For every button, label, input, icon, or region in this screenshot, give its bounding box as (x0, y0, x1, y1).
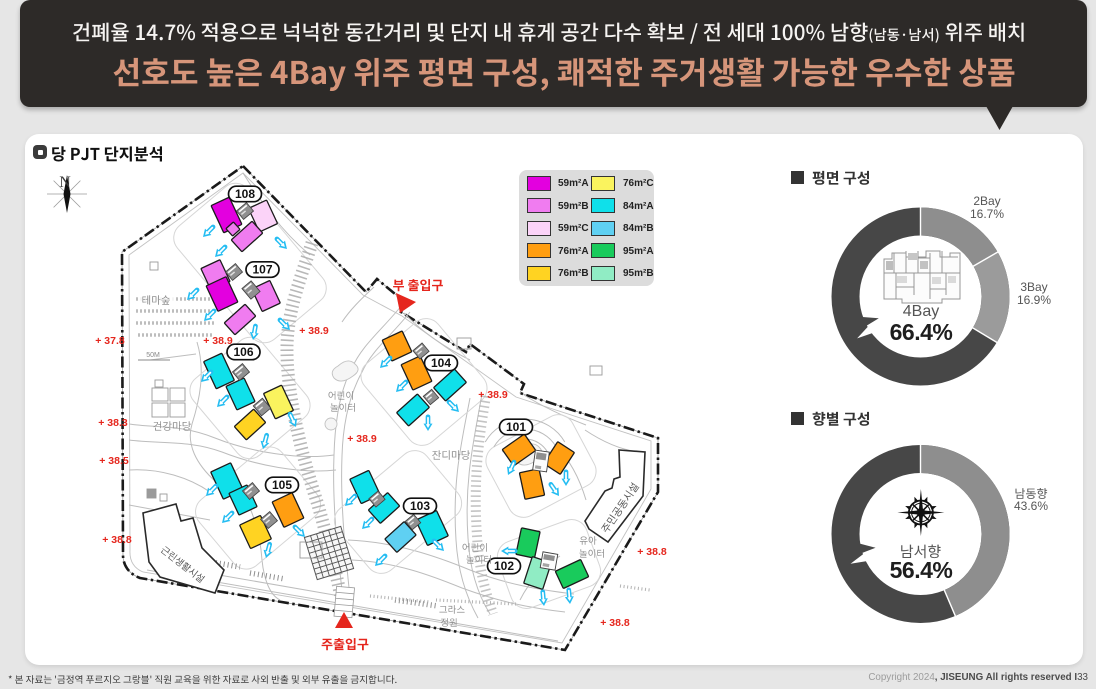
svg-text:+ 38.9: + 38.9 (347, 433, 377, 445)
svg-text:+ 38.9: + 38.9 (299, 325, 329, 337)
svg-text:102: 102 (494, 559, 514, 573)
svg-text:+ 38.8: + 38.8 (102, 534, 132, 546)
svg-text:103: 103 (410, 499, 430, 513)
svg-text:66.4%: 66.4% (890, 319, 953, 345)
svg-text:101: 101 (506, 420, 526, 434)
svg-text:104: 104 (431, 356, 451, 370)
svg-text:+ 38.8: + 38.8 (600, 617, 630, 629)
svg-text:4Bay: 4Bay (903, 303, 939, 320)
svg-text:2Bay: 2Bay (973, 194, 1000, 208)
svg-text:N: N (59, 174, 71, 191)
svg-text:106: 106 (233, 345, 253, 359)
svg-text:108: 108 (235, 187, 255, 201)
svg-text:107: 107 (252, 263, 272, 277)
svg-text:43.6%: 43.6% (1014, 499, 1048, 513)
svg-text:16.9%: 16.9% (1017, 293, 1051, 307)
svg-text:105: 105 (272, 478, 292, 492)
svg-text:3Bay: 3Bay (1020, 280, 1047, 294)
svg-text:+ 38.9: + 38.9 (478, 389, 508, 401)
svg-text:+ 38.5: + 38.5 (99, 455, 129, 467)
svg-text:50M: 50M (146, 352, 160, 359)
svg-text:+ 38.3: + 38.3 (98, 417, 128, 429)
svg-text:56.4%: 56.4% (890, 557, 953, 583)
svg-text:+ 38.8: + 38.8 (637, 546, 667, 558)
svg-text:16.7%: 16.7% (970, 207, 1004, 221)
svg-text:+ 38.9: + 38.9 (203, 335, 233, 347)
svg-text:+ 37.8: + 37.8 (95, 335, 125, 347)
